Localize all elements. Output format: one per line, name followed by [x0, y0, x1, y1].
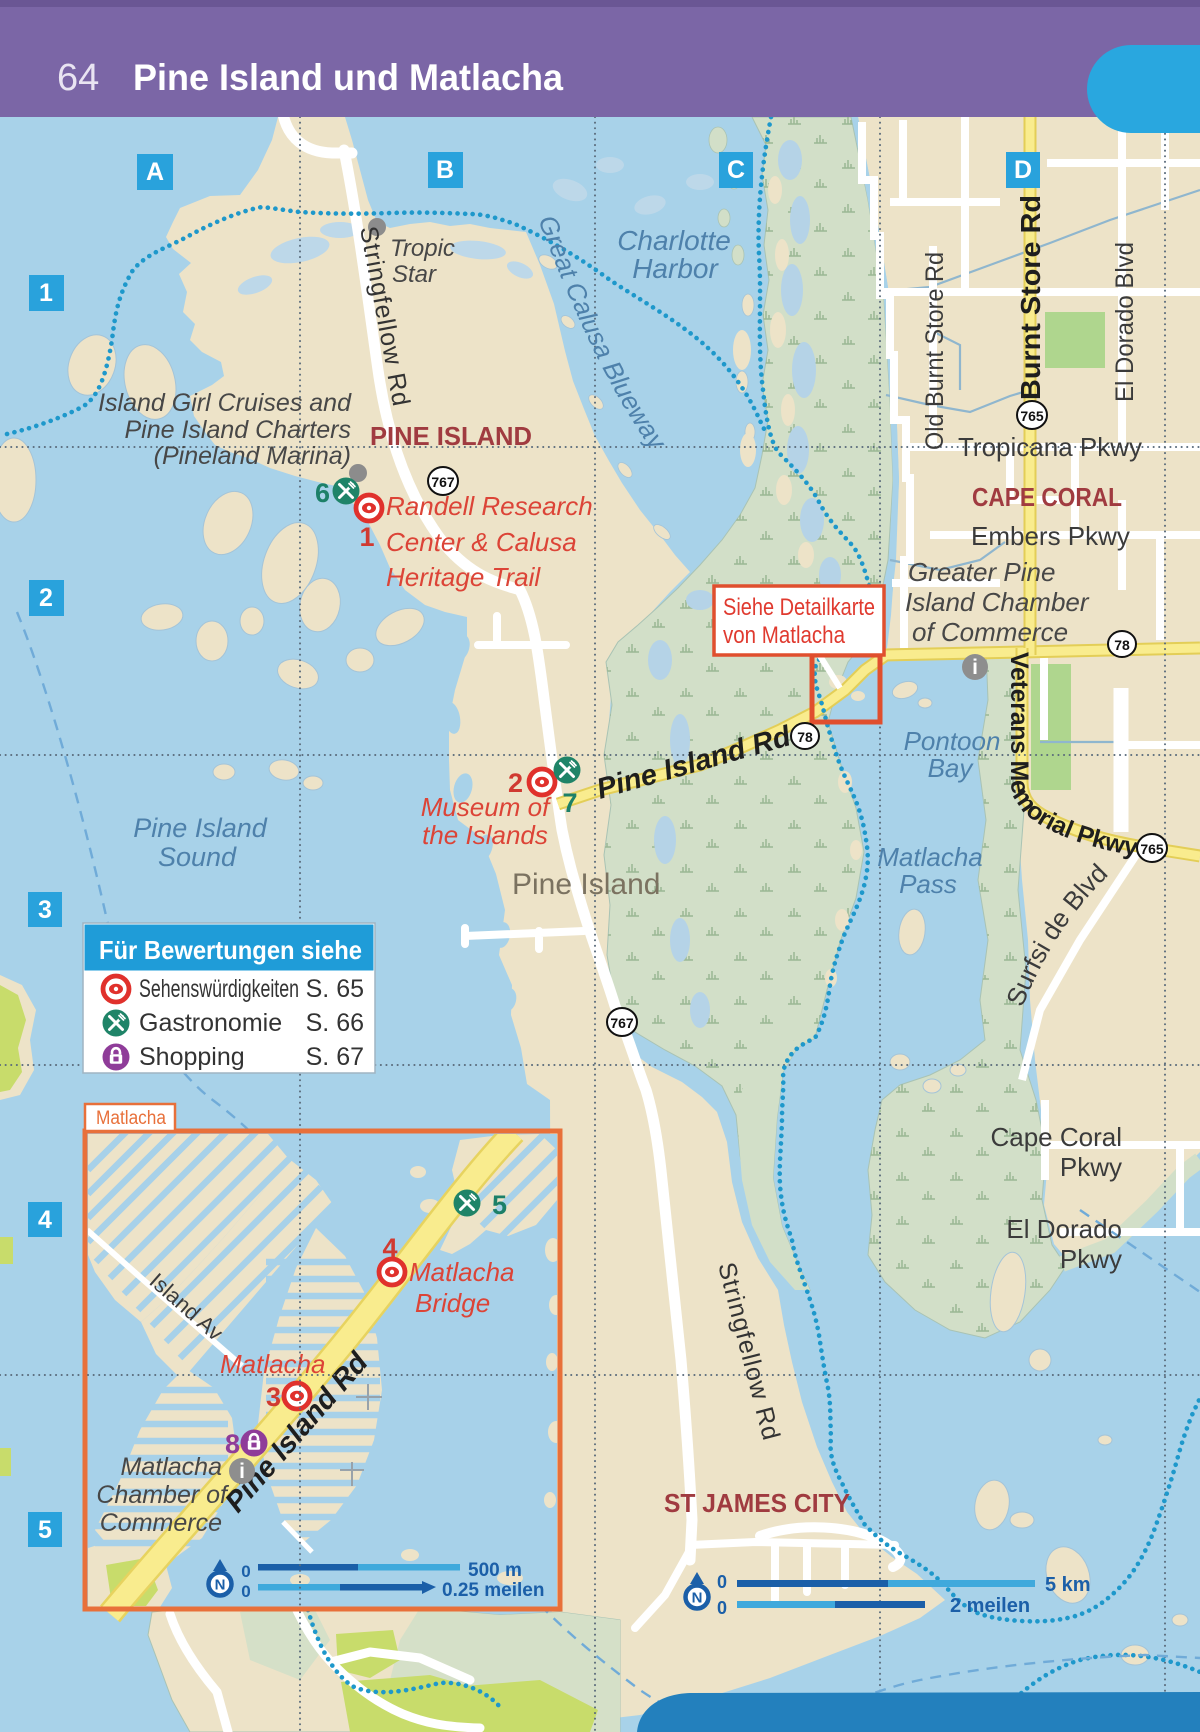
svg-text:A: A	[146, 158, 164, 186]
svg-text:Tropicana Pkwy: Tropicana Pkwy	[958, 432, 1142, 462]
svg-text:Matlacha: Matlacha	[96, 1108, 166, 1129]
svg-text:Burnt Store Rd: Burnt Store Rd	[1015, 195, 1046, 400]
svg-text:7: 7	[562, 788, 577, 818]
svg-text:767: 767	[610, 1015, 634, 1031]
svg-text:1: 1	[39, 279, 53, 307]
svg-text:Bridge: Bridge	[415, 1288, 490, 1318]
svg-text:Shopping: Shopping	[139, 1043, 245, 1071]
svg-text:Star: Star	[392, 261, 437, 288]
svg-text:S. 66: S. 66	[306, 1009, 364, 1037]
svg-text:0: 0	[717, 1598, 727, 1618]
svg-text:3: 3	[38, 896, 52, 924]
svg-text:5: 5	[492, 1190, 507, 1220]
svg-text:Pontoon: Pontoon	[904, 726, 1001, 756]
svg-text:Matlacha: Matlacha	[409, 1257, 515, 1287]
svg-text:5: 5	[38, 1516, 52, 1544]
svg-text:Heritage Trail: Heritage Trail	[386, 562, 541, 592]
svg-text:0.25 meilen: 0.25 meilen	[442, 1580, 544, 1601]
svg-text:Pine Island und Matlacha: Pine Island und Matlacha	[133, 57, 563, 98]
svg-text:CAPE CORAL: CAPE CORAL	[972, 482, 1122, 512]
svg-text:D: D	[1014, 156, 1032, 184]
svg-text:Pass: Pass	[899, 869, 957, 899]
svg-text:2: 2	[39, 584, 53, 612]
svg-text:Charlotte: Charlotte	[617, 225, 731, 256]
svg-text:Island Girl Cruises and: Island Girl Cruises and	[98, 389, 352, 417]
svg-text:Pine Island: Pine Island	[133, 813, 268, 843]
svg-text:Greater Pine: Greater Pine	[908, 557, 1055, 587]
svg-text:765: 765	[1020, 408, 1044, 424]
svg-text:Pkwy: Pkwy	[1060, 1152, 1122, 1182]
svg-text:El Dorado: El Dorado	[1006, 1214, 1122, 1244]
svg-text:C: C	[727, 156, 745, 184]
svg-text:Sehenswürdigkeiten: Sehenswürdigkeiten	[139, 975, 299, 1003]
svg-text:78: 78	[1114, 637, 1130, 653]
svg-text:5 km: 5 km	[1045, 1574, 1091, 1596]
svg-text:Commerce: Commerce	[100, 1509, 222, 1537]
svg-text:Cape Coral: Cape Coral	[990, 1122, 1122, 1152]
svg-text:of Commerce: of Commerce	[912, 617, 1068, 647]
svg-text:4: 4	[38, 1206, 52, 1234]
svg-text:S. 67: S. 67	[306, 1043, 364, 1071]
svg-text:Tropic: Tropic	[390, 235, 455, 262]
svg-text:0: 0	[717, 1572, 727, 1592]
svg-text:Randell Research: Randell Research	[386, 491, 593, 521]
svg-text:Old Burnt Store Rd: Old Burnt Store Rd	[921, 252, 949, 450]
svg-text:3: 3	[266, 1382, 281, 1412]
svg-text:Chamber of: Chamber of	[96, 1481, 230, 1509]
svg-text:Island Chamber: Island Chamber	[905, 587, 1090, 617]
svg-text:Sound: Sound	[158, 842, 237, 872]
svg-text:64: 64	[57, 57, 99, 99]
svg-text:B: B	[436, 156, 454, 184]
svg-text:the Islands: the Islands	[422, 820, 548, 850]
svg-text:Museum of: Museum of	[421, 792, 552, 822]
svg-text:0: 0	[241, 1562, 250, 1581]
svg-text:0: 0	[241, 1582, 250, 1601]
svg-text:6: 6	[315, 478, 330, 508]
svg-text:2 meilen: 2 meilen	[950, 1595, 1030, 1617]
svg-text:765: 765	[1140, 841, 1164, 857]
svg-text:Bay: Bay	[928, 753, 975, 783]
svg-text:Matlacha: Matlacha	[877, 842, 983, 872]
svg-text:Harbor: Harbor	[632, 253, 719, 284]
svg-text:Center & Calusa: Center & Calusa	[386, 527, 577, 557]
svg-text:8: 8	[225, 1429, 240, 1459]
svg-text:Gastronomie: Gastronomie	[139, 1009, 282, 1037]
svg-text:Matlacha: Matlacha	[121, 1453, 223, 1481]
svg-text:500 m: 500 m	[468, 1560, 522, 1581]
svg-text:Für Bewertungen siehe: Für Bewertungen siehe	[99, 935, 362, 965]
svg-text:Embers Pkwy: Embers Pkwy	[971, 521, 1130, 551]
svg-text:Pkwy: Pkwy	[1060, 1244, 1122, 1274]
svg-text:78: 78	[797, 729, 813, 745]
svg-text:PINE ISLAND: PINE ISLAND	[370, 421, 532, 451]
svg-text:von Matlacha: von Matlacha	[723, 622, 846, 649]
svg-text:S. 65: S. 65	[306, 975, 364, 1003]
svg-text:Pine Island Charters: Pine Island Charters	[124, 416, 351, 444]
svg-text:1: 1	[359, 522, 374, 552]
svg-text:767: 767	[431, 474, 455, 490]
svg-text:ST JAMES CITY: ST JAMES CITY	[664, 1488, 850, 1518]
svg-text:(Pineland Marina): (Pineland Marina)	[154, 442, 351, 470]
svg-text:Pine Island: Pine Island	[512, 868, 660, 901]
svg-text:Siehe Detailkarte: Siehe Detailkarte	[723, 594, 875, 621]
svg-text:El Dorado Blvd: El Dorado Blvd	[1111, 242, 1139, 402]
